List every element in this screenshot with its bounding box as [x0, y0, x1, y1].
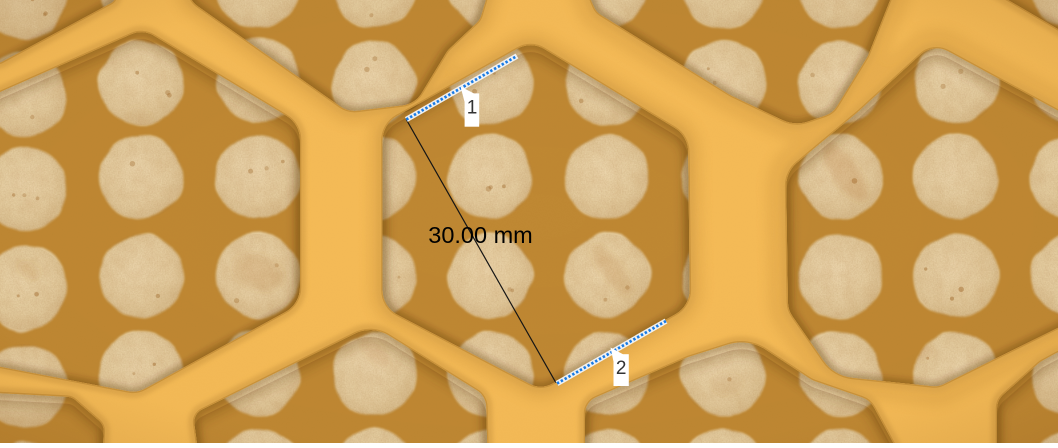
svg-text:1: 1	[467, 98, 478, 119]
svg-text:30.00 mm: 30.00 mm	[428, 222, 533, 248]
svg-text:2: 2	[616, 358, 627, 379]
